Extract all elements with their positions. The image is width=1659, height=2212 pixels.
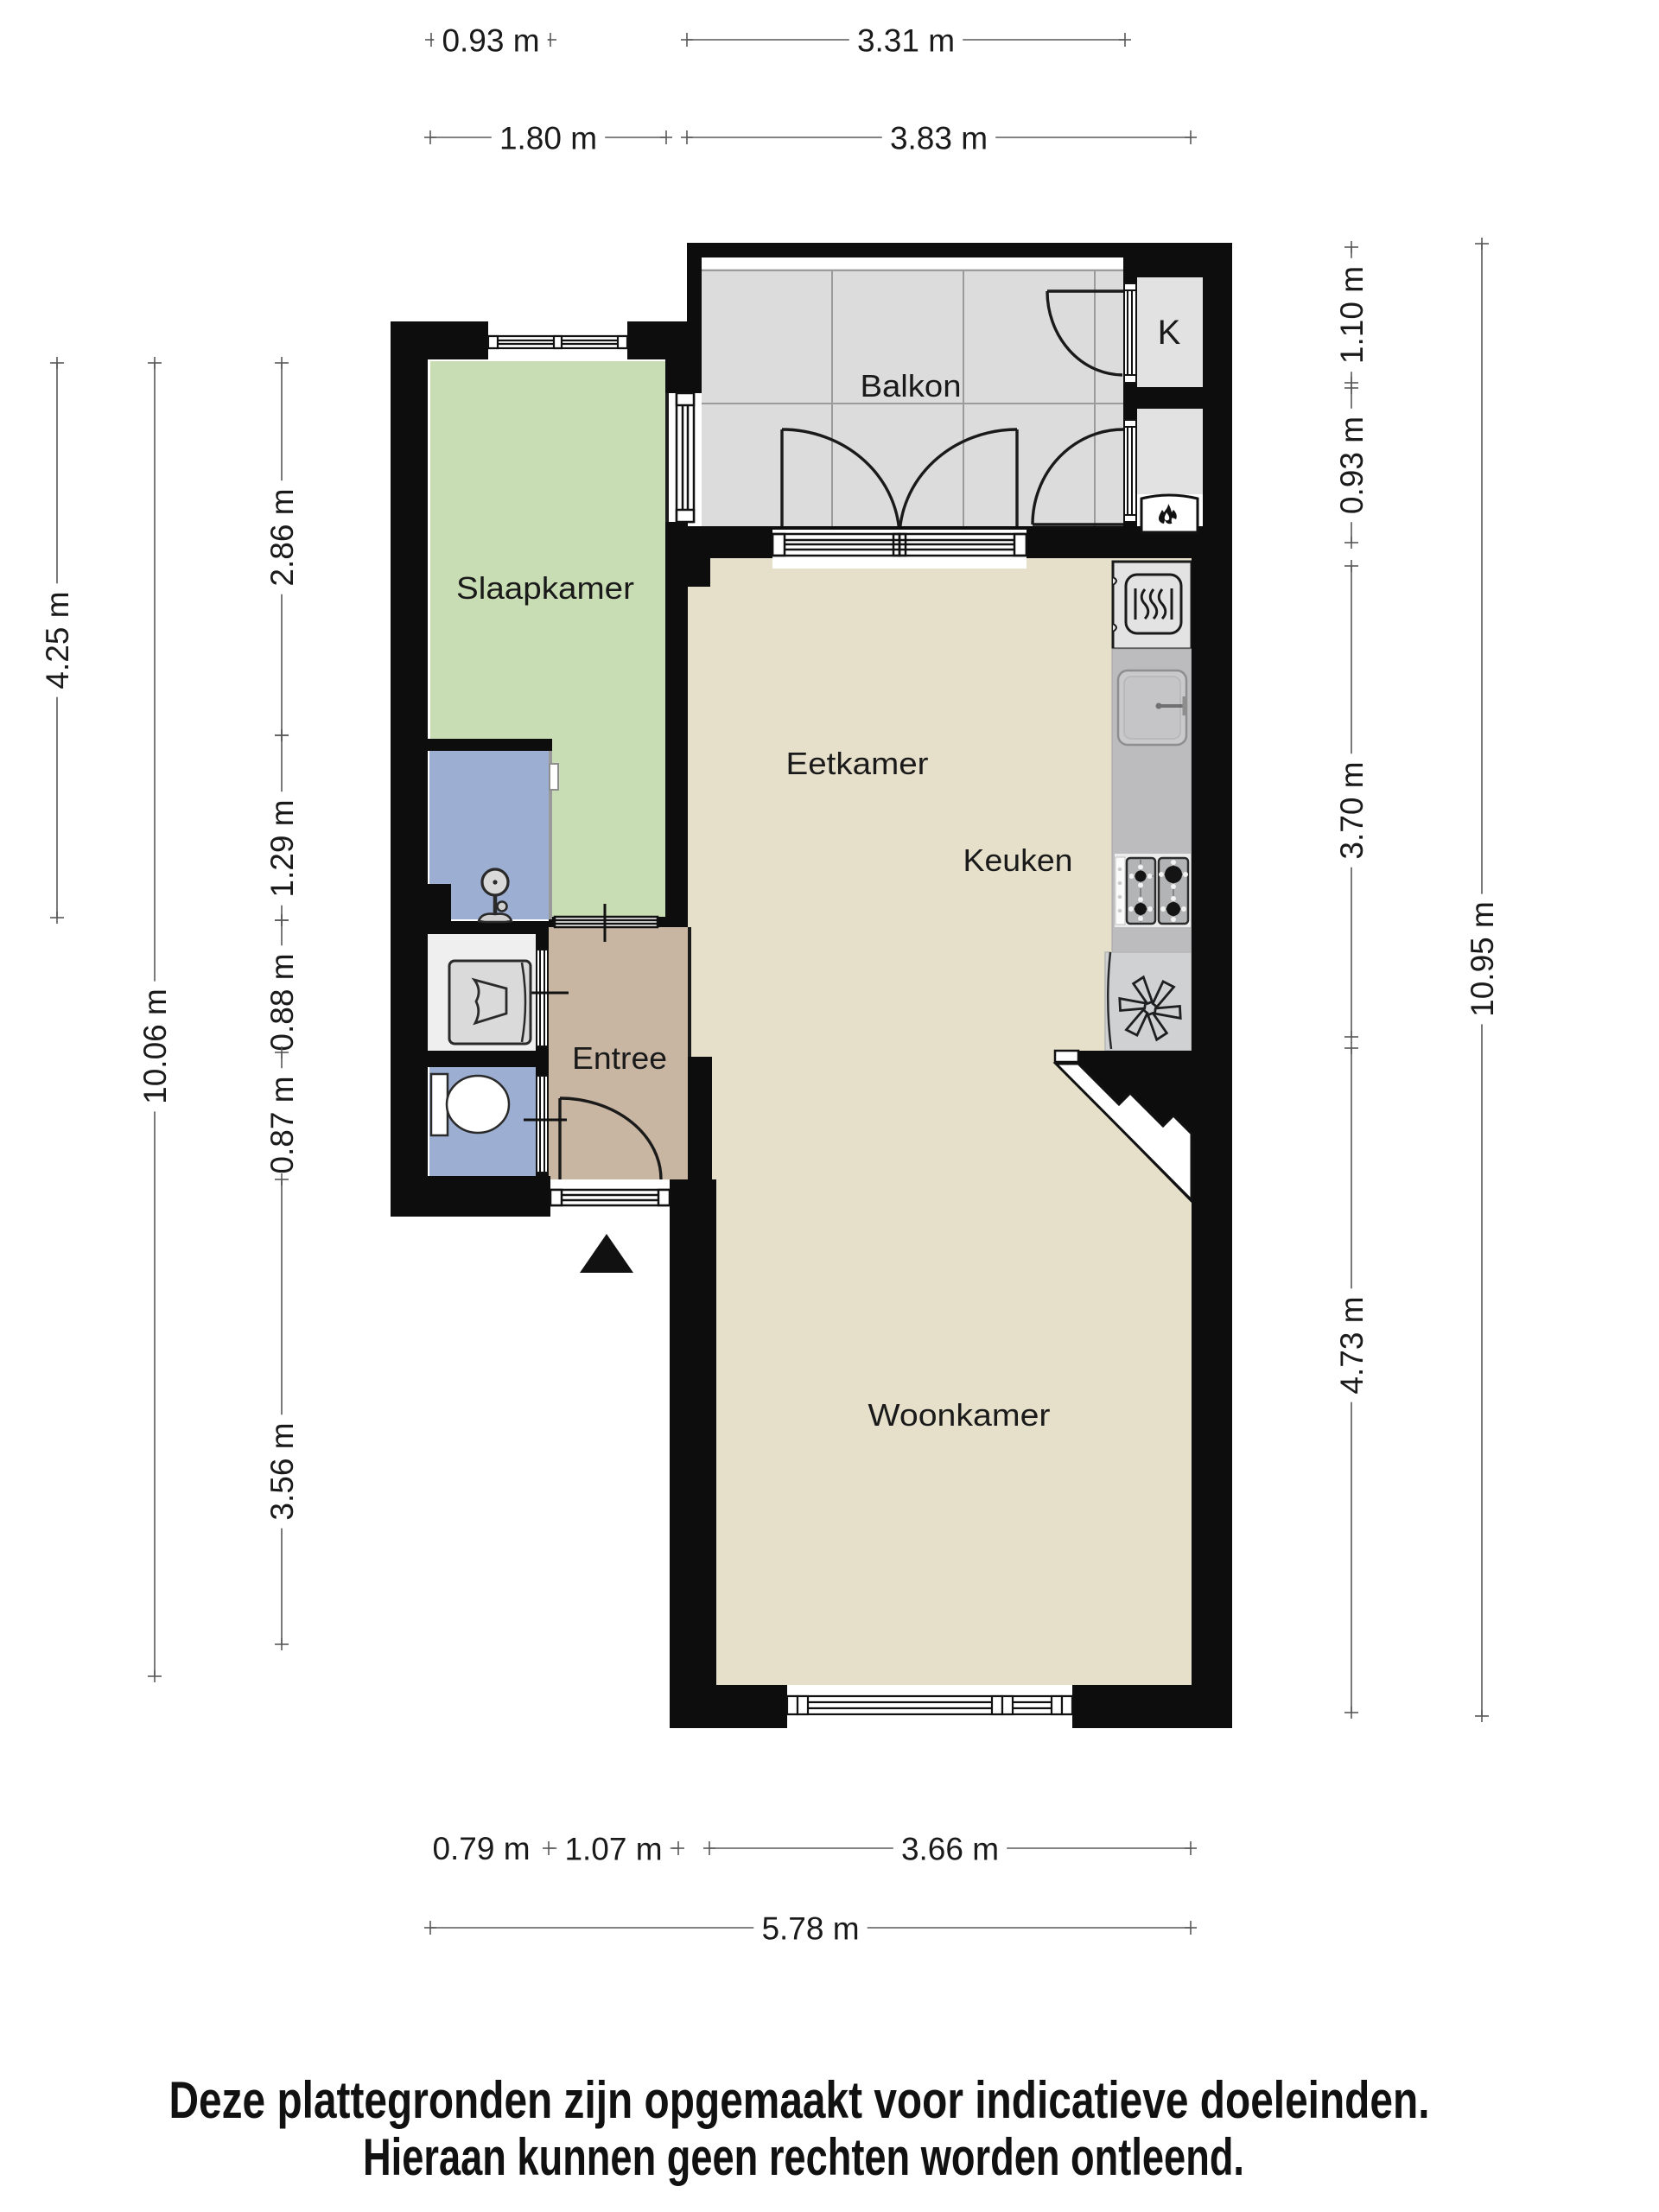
svg-text:4.73 m: 4.73 m [1334, 1296, 1370, 1394]
svg-text:0.87 m: 0.87 m [264, 1076, 300, 1173]
svg-text:Deze plattegronden zijn opgema: Deze plattegronden zijn opgemaakt voor i… [169, 2071, 1430, 2129]
svg-text:Balkon: Balkon [861, 368, 962, 404]
svg-text:3.56 m: 3.56 m [264, 1422, 300, 1520]
svg-text:0.93 m: 0.93 m [442, 22, 539, 58]
svg-text:Hieraan kunnen geen rechten wo: Hieraan kunnen geen rechten worden ontle… [363, 2128, 1244, 2186]
svg-text:Entree: Entree [572, 1040, 667, 1076]
svg-text:Woonkamer: Woonkamer [868, 1397, 1051, 1433]
svg-text:0.88 m: 0.88 m [264, 953, 300, 1051]
svg-text:5.78 m: 5.78 m [761, 1910, 859, 1946]
svg-text:1.10 m: 1.10 m [1334, 266, 1370, 364]
svg-text:0.93 m: 0.93 m [1334, 416, 1370, 514]
svg-text:10.95 m: 10.95 m [1465, 901, 1500, 1017]
svg-text:3.66 m: 3.66 m [901, 1831, 999, 1866]
svg-text:3.83 m: 3.83 m [890, 120, 988, 156]
svg-text:Slaapkamer: Slaapkamer [456, 570, 634, 606]
svg-text:2.86 m: 2.86 m [264, 488, 300, 586]
svg-text:1.80 m: 1.80 m [499, 120, 597, 156]
svg-text:1.29 m: 1.29 m [264, 799, 300, 897]
svg-text:0.79 m: 0.79 m [432, 1831, 530, 1866]
svg-text:3.31 m: 3.31 m [857, 22, 955, 58]
svg-text:Keuken: Keuken [963, 842, 1073, 878]
svg-text:10.06 m: 10.06 m [137, 988, 173, 1104]
svg-text:4.25 m: 4.25 m [40, 591, 75, 689]
svg-text:Eetkamer: Eetkamer [786, 746, 929, 781]
svg-text:1.07 m: 1.07 m [564, 1831, 662, 1866]
svg-text:K: K [1158, 314, 1181, 352]
svg-text:3.70 m: 3.70 m [1334, 761, 1370, 859]
